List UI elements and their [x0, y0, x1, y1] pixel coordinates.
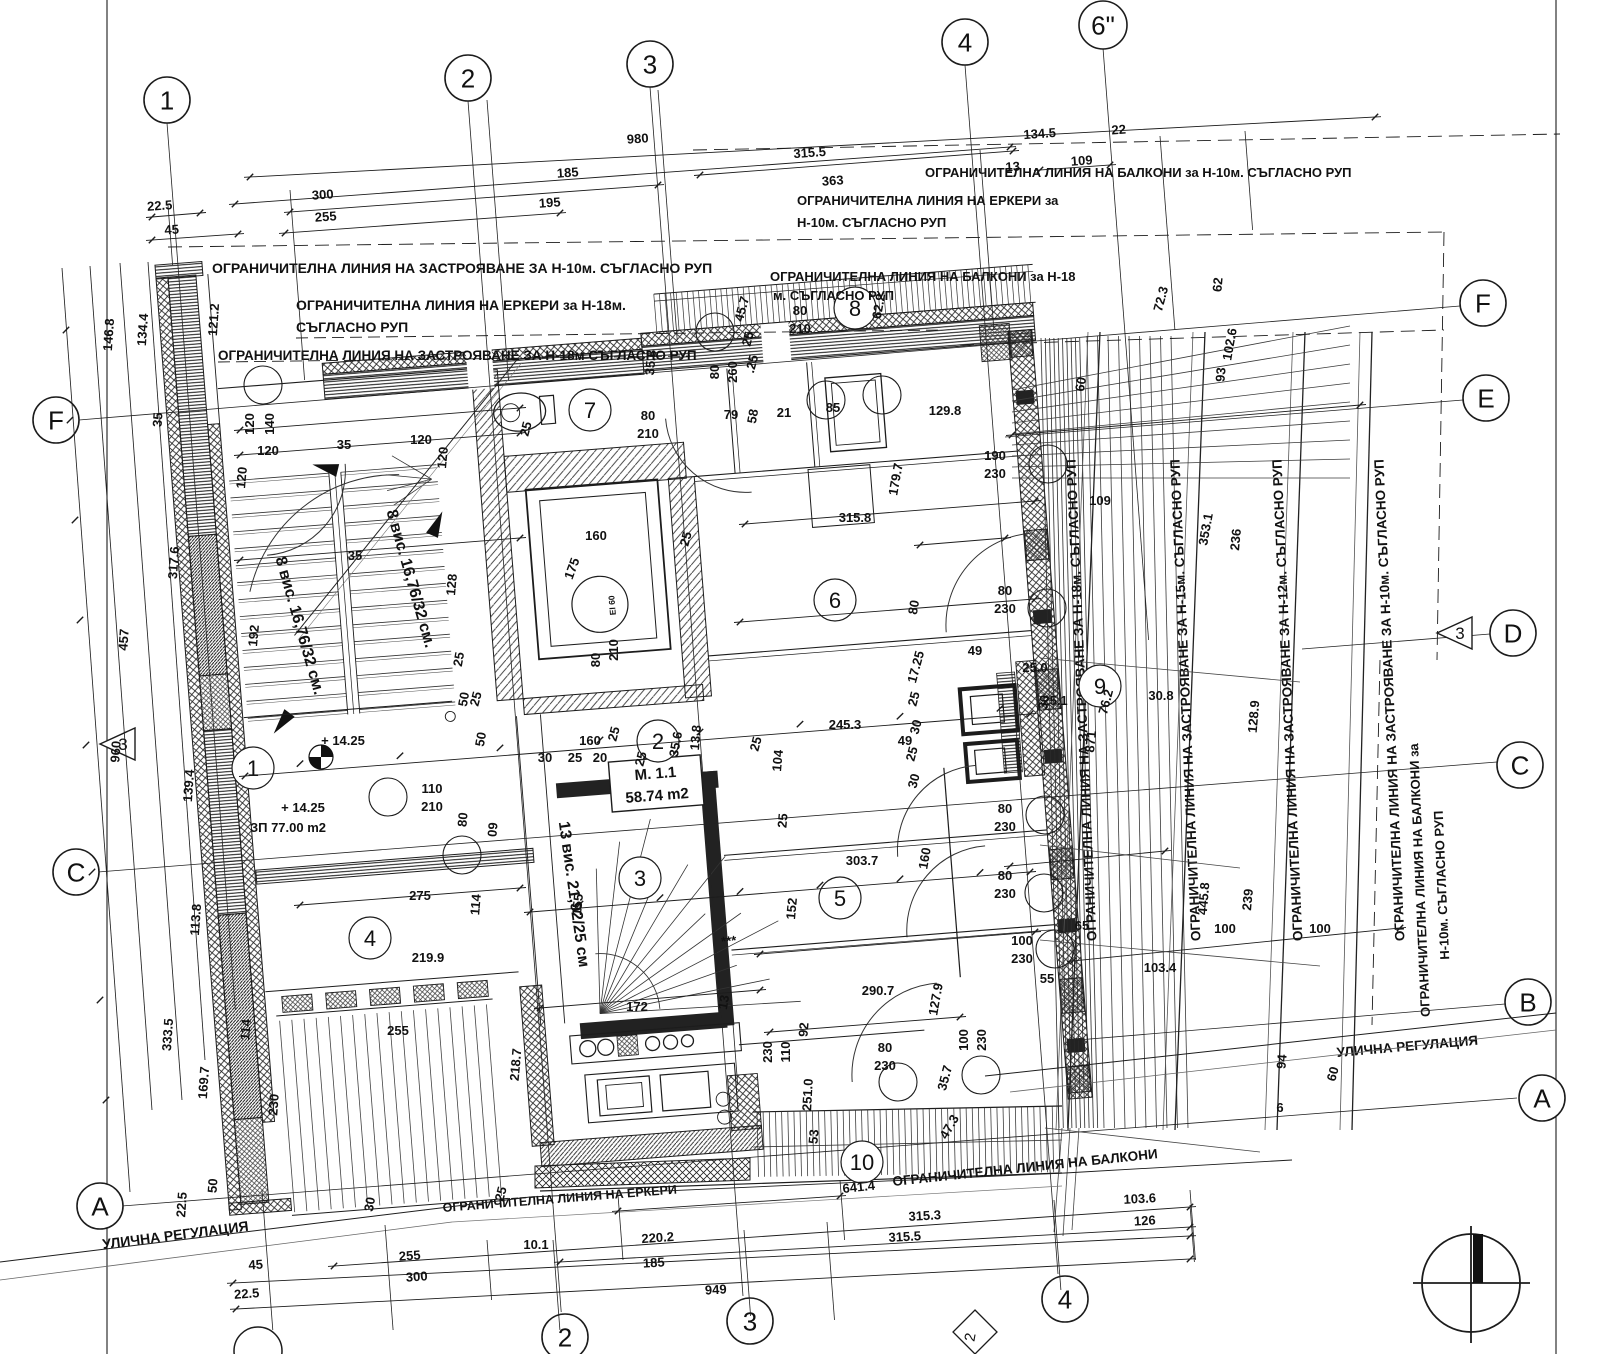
svg-text:155: 155 — [569, 893, 586, 916]
svg-text:80: 80 — [998, 868, 1012, 883]
svg-text:49: 49 — [968, 643, 982, 658]
svg-text:230: 230 — [760, 1041, 775, 1063]
svg-text:185: 185 — [643, 1254, 665, 1270]
svg-text:114: 114 — [467, 893, 484, 916]
svg-text:230: 230 — [874, 1058, 896, 1073]
svg-text:128.9: 128.9 — [1245, 700, 1263, 734]
svg-text:100: 100 — [1214, 921, 1236, 936]
svg-text:218.7: 218.7 — [507, 1048, 525, 1082]
svg-text:300: 300 — [405, 1268, 428, 1284]
svg-text:22.5: 22.5 — [234, 1285, 260, 1302]
svg-text:25.0: 25.0 — [1022, 660, 1047, 675]
svg-text:A: A — [91, 1191, 109, 1221]
svg-text:3: 3 — [634, 866, 646, 891]
svg-text:245.3: 245.3 — [829, 717, 862, 732]
svg-text:210: 210 — [421, 799, 443, 814]
svg-text:871: 871 — [1082, 730, 1099, 753]
svg-text:22.5: 22.5 — [147, 197, 173, 214]
svg-text:ОГРАНИЧИТЕЛНА ЛИНИЯ НА БАЛКОНИ: ОГРАНИЧИТЕЛНА ЛИНИЯ НА БАЛКОНИ за Н-18 — [770, 269, 1076, 284]
svg-text:126: 126 — [1134, 1212, 1156, 1228]
svg-text:60: 60 — [1072, 376, 1089, 393]
svg-text:315.3: 315.3 — [908, 1207, 941, 1224]
svg-text:303.7: 303.7 — [846, 853, 879, 868]
svg-text:230: 230 — [1011, 951, 1033, 966]
svg-text:6": 6" — [1091, 10, 1115, 40]
svg-text:58: 58 — [744, 408, 761, 425]
svg-text:315.5: 315.5 — [793, 144, 827, 161]
svg-text:363: 363 — [821, 172, 844, 188]
svg-text:Н-10м. СЪГЛАСНО РУП: Н-10м. СЪГЛАСНО РУП — [797, 215, 946, 230]
svg-text:960: 960 — [107, 740, 123, 763]
svg-text:21: 21 — [777, 405, 791, 420]
svg-text:120: 120 — [233, 466, 250, 489]
svg-text:35: 35 — [150, 412, 166, 427]
svg-text:D: D — [1504, 618, 1523, 648]
svg-text:4: 4 — [364, 926, 376, 951]
svg-text:80: 80 — [707, 365, 722, 379]
svg-text:230: 230 — [984, 466, 1006, 481]
svg-text:100: 100 — [956, 1029, 971, 1051]
svg-text:110: 110 — [422, 781, 443, 796]
svg-text:300: 300 — [311, 186, 334, 202]
svg-text:4: 4 — [1058, 1284, 1072, 1314]
svg-text:92: 92 — [795, 1022, 811, 1038]
svg-text:C: C — [67, 857, 86, 887]
svg-text:13: 13 — [1005, 159, 1020, 175]
svg-text:13.8: 13.8 — [687, 724, 704, 751]
svg-text:980: 980 — [626, 130, 649, 146]
svg-text:457: 457 — [115, 628, 131, 651]
svg-text:210: 210 — [637, 426, 659, 441]
svg-text:22: 22 — [1111, 122, 1126, 138]
svg-text:25: 25 — [450, 651, 467, 668]
svg-text:80: 80 — [641, 408, 655, 423]
svg-text:ОГРАНИЧИТЕЛНА ЛИНИЯ НА ЕРКЕРИ: ОГРАНИЧИТЕЛНА ЛИНИЯ НА ЕРКЕРИ за — [797, 193, 1059, 208]
svg-text:315.5: 315.5 — [888, 1228, 921, 1245]
svg-text:5: 5 — [834, 886, 846, 911]
svg-text:B: B — [1519, 987, 1536, 1017]
svg-text:210: 210 — [606, 639, 621, 661]
svg-text:80: 80 — [905, 599, 922, 616]
svg-text:79: 79 — [724, 407, 738, 422]
svg-text:140: 140 — [262, 413, 277, 435]
svg-text:6: 6 — [1276, 1100, 1283, 1115]
svg-text:50: 50 — [205, 1178, 221, 1193]
svg-text:192: 192 — [245, 624, 262, 647]
svg-text:190: 190 — [984, 448, 1006, 463]
svg-text:1: 1 — [247, 756, 259, 781]
svg-text:2: 2 — [461, 63, 475, 93]
svg-text:C: C — [1511, 750, 1530, 780]
svg-text:35: 35 — [348, 548, 362, 563]
svg-text:230: 230 — [994, 886, 1016, 901]
svg-text:160: 160 — [585, 528, 607, 543]
svg-text:113.8: 113.8 — [187, 903, 204, 936]
svg-text:E: E — [1477, 383, 1494, 413]
svg-text:СЪГЛАСНО РУП: СЪГЛАСНО РУП — [296, 319, 408, 335]
svg-text:172: 172 — [626, 999, 648, 1014]
svg-text:80: 80 — [588, 653, 603, 667]
svg-text:+ 14.25: + 14.25 — [281, 800, 325, 815]
svg-text:134.5: 134.5 — [1023, 125, 1057, 142]
svg-text:93: 93 — [1212, 367, 1228, 383]
svg-text:134.4: 134.4 — [134, 312, 151, 346]
svg-text:255: 255 — [387, 1023, 409, 1038]
svg-text:***: *** — [721, 933, 738, 949]
svg-text:230: 230 — [974, 1029, 989, 1051]
svg-text:3: 3 — [1455, 624, 1464, 643]
svg-text:195: 195 — [538, 194, 561, 210]
svg-text:949: 949 — [705, 1281, 727, 1297]
svg-text:55: 55 — [1040, 971, 1054, 986]
svg-text:260: 260 — [725, 361, 740, 383]
svg-text:445.8: 445.8 — [1195, 882, 1213, 916]
svg-text:100: 100 — [1011, 933, 1033, 948]
svg-text:ЗП 77.00 m2: ЗП 77.00 m2 — [250, 820, 326, 835]
svg-text:65: 65 — [1075, 918, 1089, 933]
svg-text:F: F — [1475, 288, 1491, 318]
svg-text:30: 30 — [538, 750, 552, 765]
svg-text:275: 275 — [409, 888, 431, 903]
svg-text:2: 2 — [652, 729, 664, 754]
svg-text:94: 94 — [1273, 1053, 1289, 1069]
svg-text:255: 255 — [398, 1247, 421, 1263]
svg-text:230: 230 — [994, 601, 1016, 616]
svg-text:120: 120 — [242, 413, 257, 435]
svg-text:114: 114 — [237, 1018, 254, 1041]
svg-text:210: 210 — [789, 321, 811, 336]
svg-text:10.1: 10.1 — [523, 1237, 548, 1252]
svg-text:239: 239 — [1239, 888, 1256, 911]
svg-text:10: 10 — [850, 1150, 874, 1175]
svg-text:30: 30 — [1035, 694, 1052, 711]
svg-text:120: 120 — [434, 446, 451, 469]
svg-text:290.7: 290.7 — [862, 983, 895, 998]
svg-text:103.6: 103.6 — [1123, 1190, 1156, 1207]
svg-text:110: 110 — [778, 1042, 793, 1063]
svg-text:ОГРАНИЧИТЕЛНА ЛИНИЯ НА БАЛКОНИ: ОГРАНИЧИТЕЛНА ЛИНИЯ НА БАЛКОНИ за Н-10м.… — [925, 165, 1352, 180]
svg-text:236: 236 — [1227, 528, 1244, 551]
svg-text:315.8: 315.8 — [839, 510, 872, 525]
svg-text:35: 35 — [337, 437, 351, 452]
svg-text:F: F — [48, 405, 64, 435]
svg-text:62: 62 — [1209, 277, 1225, 293]
svg-text:50: 50 — [472, 731, 489, 748]
svg-text:121.2: 121.2 — [205, 303, 222, 337]
svg-text:219.9: 219.9 — [412, 950, 445, 965]
svg-text:160: 160 — [579, 733, 601, 748]
svg-text:1: 1 — [160, 85, 174, 115]
svg-text:ОГРАНИЧИТЕЛНА ЛИНИЯ НА ЕРКЕРИ: ОГРАНИЧИТЕЛНА ЛИНИЯ НА ЕРКЕРИ за Н-18м. — [296, 297, 626, 313]
svg-text:A: A — [1533, 1083, 1551, 1113]
svg-text:45: 45 — [164, 222, 179, 238]
svg-text:7: 7 — [584, 398, 596, 423]
svg-text:80: 80 — [454, 812, 470, 828]
svg-text:169.7: 169.7 — [195, 1066, 212, 1100]
svg-text:13: 13 — [715, 994, 732, 1011]
svg-text:20: 20 — [593, 750, 607, 765]
svg-text:80: 80 — [998, 583, 1012, 598]
svg-text:+ 14.25: + 14.25 — [321, 733, 365, 748]
svg-text:129.8: 129.8 — [929, 403, 962, 418]
svg-text:80: 80 — [793, 303, 807, 318]
svg-text:30: 30 — [361, 1196, 378, 1213]
svg-text:49: 49 — [898, 733, 912, 748]
svg-text:185: 185 — [556, 164, 579, 180]
svg-text:146.8: 146.8 — [100, 318, 117, 352]
svg-text:EI 60: EI 60 — [606, 595, 618, 616]
svg-text:25: 25 — [774, 813, 790, 829]
svg-text:53: 53 — [805, 1129, 821, 1145]
svg-text:104: 104 — [769, 748, 786, 772]
svg-text:109: 109 — [1089, 493, 1111, 508]
svg-text:109: 109 — [1070, 152, 1093, 168]
svg-text:220.2: 220.2 — [641, 1229, 675, 1246]
svg-text:85: 85 — [826, 400, 840, 415]
svg-text:103.4: 103.4 — [1144, 960, 1177, 975]
svg-text:30.8: 30.8 — [1148, 688, 1173, 703]
svg-text:120: 120 — [410, 432, 432, 447]
svg-text:120: 120 — [257, 443, 279, 458]
svg-text:230: 230 — [265, 1093, 281, 1116]
svg-text:ОГРАНИЧИТЕЛНА ЛИНИЯ НА ЗАСТРОЯ: ОГРАНИЧИТЕЛНА ЛИНИЯ НА ЗАСТРОЯВАНЕ ЗА Н-… — [218, 348, 697, 363]
svg-text:25: 25 — [568, 750, 582, 765]
svg-text:35.8: 35.8 — [642, 349, 659, 376]
svg-text:22.5: 22.5 — [173, 1192, 190, 1218]
svg-text:152: 152 — [783, 897, 800, 920]
svg-text:45: 45 — [248, 1257, 263, 1273]
svg-text:230: 230 — [994, 819, 1016, 834]
svg-text:333.5: 333.5 — [159, 1018, 176, 1052]
svg-text:80: 80 — [878, 1040, 892, 1055]
svg-text:251.0: 251.0 — [799, 1078, 816, 1111]
svg-text:317.6: 317.6 — [165, 546, 182, 580]
svg-text:100: 100 — [1309, 921, 1331, 936]
svg-text:6: 6 — [829, 588, 841, 613]
svg-text:128: 128 — [443, 573, 460, 596]
svg-text:3: 3 — [643, 49, 657, 79]
svg-text:255: 255 — [314, 208, 337, 224]
svg-text:09: 09 — [484, 822, 500, 838]
svg-text:4: 4 — [958, 27, 972, 57]
svg-text:80: 80 — [998, 801, 1012, 816]
svg-text:139.4: 139.4 — [180, 768, 197, 802]
svg-text:ОГРАНИЧИТЕЛНА ЛИНИЯ НА ЗАСТРОЯ: ОГРАНИЧИТЕЛНА ЛИНИЯ НА ЗАСТРОЯВАНЕ ЗА Н-… — [212, 260, 712, 276]
